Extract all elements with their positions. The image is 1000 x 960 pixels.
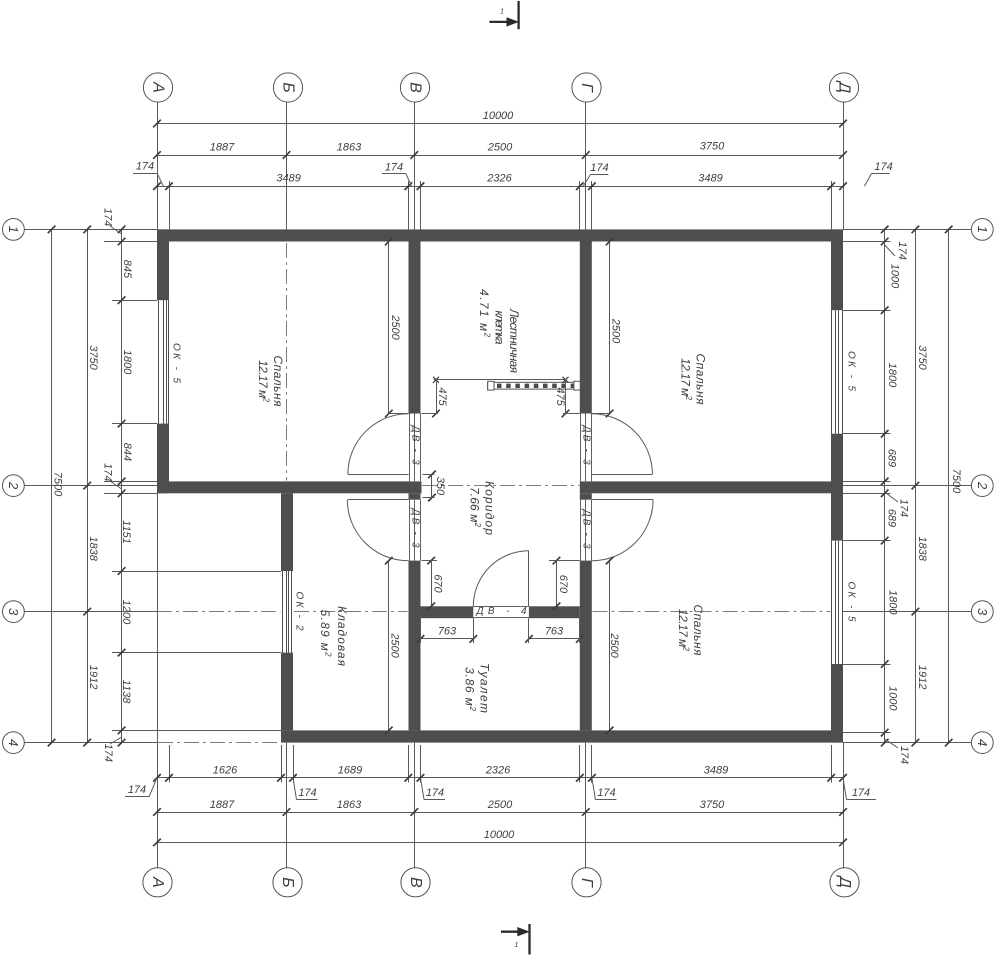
svg-text:1863: 1863 (337, 142, 362, 154)
svg-text:2500: 2500 (389, 314, 401, 340)
svg-text:2: 2 (6, 481, 21, 490)
svg-text:3489: 3489 (698, 173, 722, 185)
svg-text:1887: 1887 (210, 142, 235, 154)
svg-text:4: 4 (975, 739, 990, 746)
svg-text:Коридор: Коридор (483, 481, 497, 535)
svg-text:7.66 м2: 7.66 м2 (468, 487, 483, 528)
svg-text:174: 174 (426, 787, 444, 799)
svg-text:10000: 10000 (483, 110, 514, 122)
svg-text:2500: 2500 (487, 799, 513, 811)
svg-text:Спальня: Спальня (691, 605, 705, 657)
svg-text:174: 174 (102, 463, 114, 481)
svg-text:Туалет: Туалет (478, 663, 492, 713)
svg-text:Д: Д (836, 875, 853, 888)
svg-text:В: В (407, 82, 424, 93)
svg-text:4.71 м2: 4.71 м2 (477, 289, 492, 338)
svg-text:1689: 1689 (338, 764, 362, 776)
svg-text:12.17 м2: 12.17 м2 (676, 609, 691, 652)
svg-text:ДВ - 3: ДВ - 3 (410, 508, 421, 548)
svg-text:12.17 м2: 12.17 м2 (679, 358, 694, 401)
svg-text:Кладовая: Кладовая (335, 606, 349, 667)
svg-text:клетка: клетка (493, 311, 507, 345)
svg-text:174: 174 (128, 784, 146, 796)
svg-text:174: 174 (898, 746, 910, 764)
svg-text:3750: 3750 (916, 345, 928, 370)
svg-text:689: 689 (886, 449, 898, 467)
svg-text:2500: 2500 (487, 142, 513, 154)
svg-text:174: 174 (590, 162, 608, 174)
svg-text:174: 174 (298, 787, 316, 799)
svg-text:2: 2 (975, 481, 990, 490)
svg-text:1626: 1626 (213, 764, 238, 776)
svg-text:1838: 1838 (916, 536, 928, 561)
svg-text:А: А (149, 876, 166, 888)
svg-text:1800: 1800 (887, 590, 899, 615)
svg-text:4: 4 (6, 739, 21, 746)
svg-text:Г: Г (578, 878, 595, 888)
svg-text:174: 174 (385, 162, 403, 174)
svg-text:Г: Г (578, 83, 595, 93)
svg-text:1912: 1912 (916, 665, 928, 689)
svg-text:5.89 м2: 5.89 м2 (318, 610, 333, 658)
svg-text:Б: Б (280, 82, 297, 92)
svg-text:1: 1 (975, 226, 990, 233)
svg-text:1151: 1151 (120, 520, 132, 544)
svg-text:670: 670 (432, 574, 444, 593)
svg-text:1800: 1800 (121, 350, 133, 375)
svg-text:689: 689 (886, 509, 898, 527)
svg-text:475: 475 (436, 387, 448, 406)
svg-text:3750: 3750 (700, 799, 725, 811)
svg-text:3: 3 (6, 608, 21, 616)
svg-text:3750: 3750 (700, 141, 725, 153)
svg-text:1: 1 (515, 942, 519, 949)
svg-text:844: 844 (121, 443, 133, 461)
svg-text:2326: 2326 (486, 173, 512, 185)
svg-text:ДВ - 3: ДВ - 3 (581, 425, 592, 465)
svg-text:3: 3 (975, 608, 990, 616)
svg-text:3750: 3750 (87, 345, 99, 370)
svg-text:12.17 м2: 12.17 м2 (256, 360, 271, 403)
svg-text:174: 174 (896, 242, 908, 260)
svg-text:475: 475 (554, 387, 566, 406)
svg-text:Спальня: Спальня (271, 356, 285, 408)
svg-text:670: 670 (557, 575, 569, 594)
svg-text:Д: Д (836, 80, 853, 93)
svg-text:Б: Б (279, 877, 296, 887)
svg-text:1800: 1800 (886, 363, 898, 388)
svg-text:763: 763 (545, 626, 564, 638)
svg-text:1000: 1000 (887, 686, 899, 711)
svg-text:2500: 2500 (610, 318, 622, 344)
svg-text:1838: 1838 (87, 536, 99, 561)
svg-text:2500: 2500 (608, 632, 620, 658)
svg-text:ОК - 5: ОК - 5 (846, 582, 857, 622)
svg-text:10000: 10000 (484, 829, 515, 841)
svg-text:350: 350 (434, 477, 446, 496)
svg-text:ДВ - 3: ДВ - 3 (410, 425, 421, 465)
svg-text:174: 174 (102, 208, 114, 226)
svg-text:1000: 1000 (889, 264, 901, 289)
svg-text:1: 1 (6, 226, 21, 233)
svg-text:763: 763 (438, 626, 457, 638)
svg-text:ДВ - 3: ДВ - 3 (581, 509, 592, 549)
svg-text:Спальня: Спальня (694, 354, 708, 406)
svg-text:1912: 1912 (87, 665, 99, 689)
svg-text:В: В (407, 877, 424, 888)
svg-text:1138: 1138 (120, 680, 132, 705)
svg-text:ОК - 5: ОК - 5 (846, 351, 857, 391)
svg-text:1: 1 (500, 9, 504, 16)
svg-text:845: 845 (121, 260, 133, 279)
svg-text:174: 174 (136, 161, 154, 173)
svg-text:174: 174 (898, 499, 910, 517)
svg-text:3.86 м2: 3.86 м2 (463, 667, 478, 712)
svg-text:3489: 3489 (704, 764, 728, 776)
svg-text:ОК - 5: ОК - 5 (171, 343, 182, 383)
svg-text:7500: 7500 (51, 472, 63, 497)
svg-text:1200: 1200 (120, 600, 132, 625)
svg-text:174: 174 (597, 787, 615, 799)
svg-text:ОК - 2: ОК - 2 (294, 592, 305, 631)
svg-text:1887: 1887 (210, 799, 235, 811)
svg-text:2326: 2326 (485, 764, 511, 776)
svg-text:А: А (150, 81, 167, 93)
svg-text:174: 174 (852, 787, 870, 799)
svg-text:174: 174 (102, 744, 114, 762)
svg-text:1863: 1863 (337, 799, 362, 811)
svg-text:174: 174 (874, 161, 892, 173)
svg-text:2500: 2500 (388, 632, 400, 658)
svg-text:Лестничная: Лестничная (507, 308, 521, 374)
svg-text:3489: 3489 (276, 173, 300, 185)
svg-text:7500: 7500 (950, 469, 962, 494)
